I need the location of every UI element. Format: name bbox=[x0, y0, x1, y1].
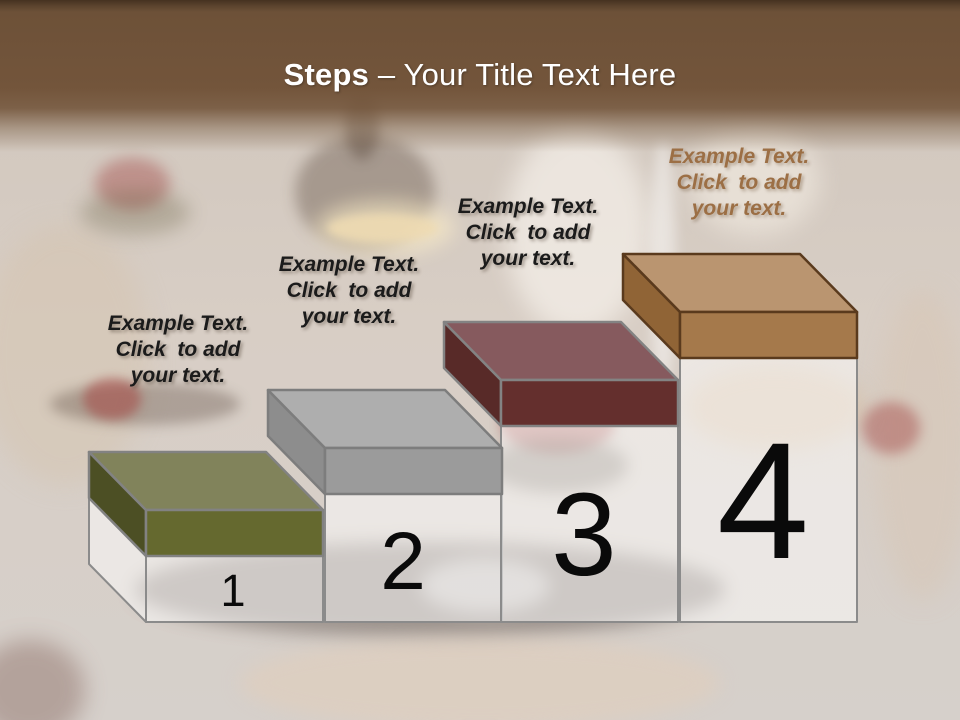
slide: Steps – Your Title Text Here 1234 Exampl… bbox=[0, 0, 960, 720]
title-placeholder-text: – Your Title Text Here bbox=[369, 57, 676, 92]
step-box-3[interactable] bbox=[444, 322, 678, 426]
step-label-3[interactable]: Example Text. Click to add your text. bbox=[413, 194, 643, 272]
step-box-4[interactable] bbox=[623, 254, 857, 358]
title-keyword: Steps bbox=[284, 57, 369, 92]
step-number-2: 2 bbox=[380, 516, 426, 607]
step-number-3: 3 bbox=[551, 469, 617, 601]
step-number-4: 4 bbox=[717, 409, 809, 594]
slide-title[interactable]: Steps – Your Title Text Here bbox=[0, 0, 960, 93]
step-label-4[interactable]: Example Text. Click to add your text. bbox=[624, 144, 854, 222]
step-number-1: 1 bbox=[220, 565, 245, 616]
title-bar: Steps – Your Title Text Here bbox=[0, 0, 960, 165]
step-box-2[interactable] bbox=[268, 390, 502, 494]
